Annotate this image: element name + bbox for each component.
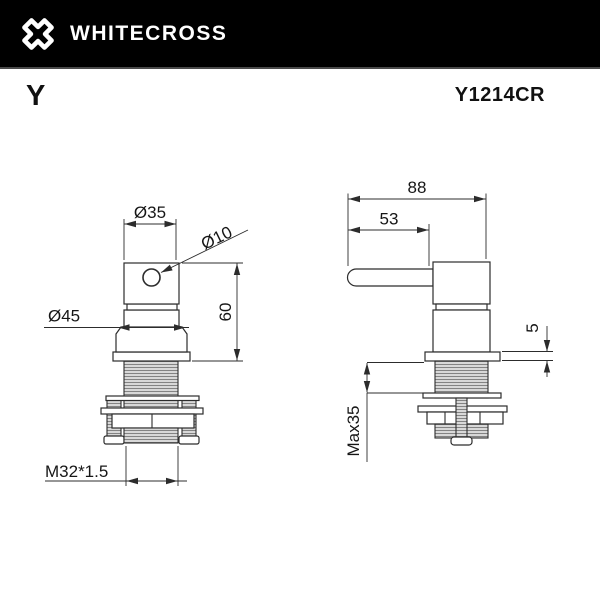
dim-body-height-label: 60 [216,303,235,322]
side-neck [436,304,487,310]
side-flange [425,352,500,361]
front-collar [116,327,187,352]
brand-wordmark: WHITECROSS [70,22,227,46]
dim-max-mounting-label: Max35 [344,405,363,456]
side-body [433,262,490,304]
front-washer [106,396,199,401]
front-lower-threads [124,428,178,443]
front-right-screw-head [179,436,199,444]
dim-top-diameter-label: Ø35 [134,203,166,222]
front-view: Ø35 Ø10 60 Ø45 M32*1.5 [44,203,248,486]
dim-thread-spec-label: M32*1.5 [45,462,108,481]
dim-overall-width-label: 88 [408,178,427,197]
side-lower-body [433,310,490,352]
front-mid-section [124,310,179,327]
side-screw [456,398,467,438]
front-mounting-plate [101,408,203,414]
whitecross-x-icon [18,14,58,54]
side-screw-head [451,437,472,445]
side-washer [423,393,501,398]
series-label: Y [26,80,45,113]
model-number: Y1214CR [455,84,545,107]
dim-handle-length-label: 53 [380,210,399,229]
front-neck [127,304,177,310]
side-view: 88 53 5 Max35 [344,178,553,462]
dim-hole-diameter-label: Ø10 [198,222,235,253]
side-handle [348,269,434,286]
front-hex-nut [112,414,194,428]
dim-flange-height-label: 5 [523,323,542,332]
header-bar: WHITECROSS [0,0,600,69]
front-left-screw-head [104,436,124,444]
front-flange [113,352,190,361]
front-hole [143,269,160,286]
dim-collar-diameter-label: Ø45 [48,307,80,326]
